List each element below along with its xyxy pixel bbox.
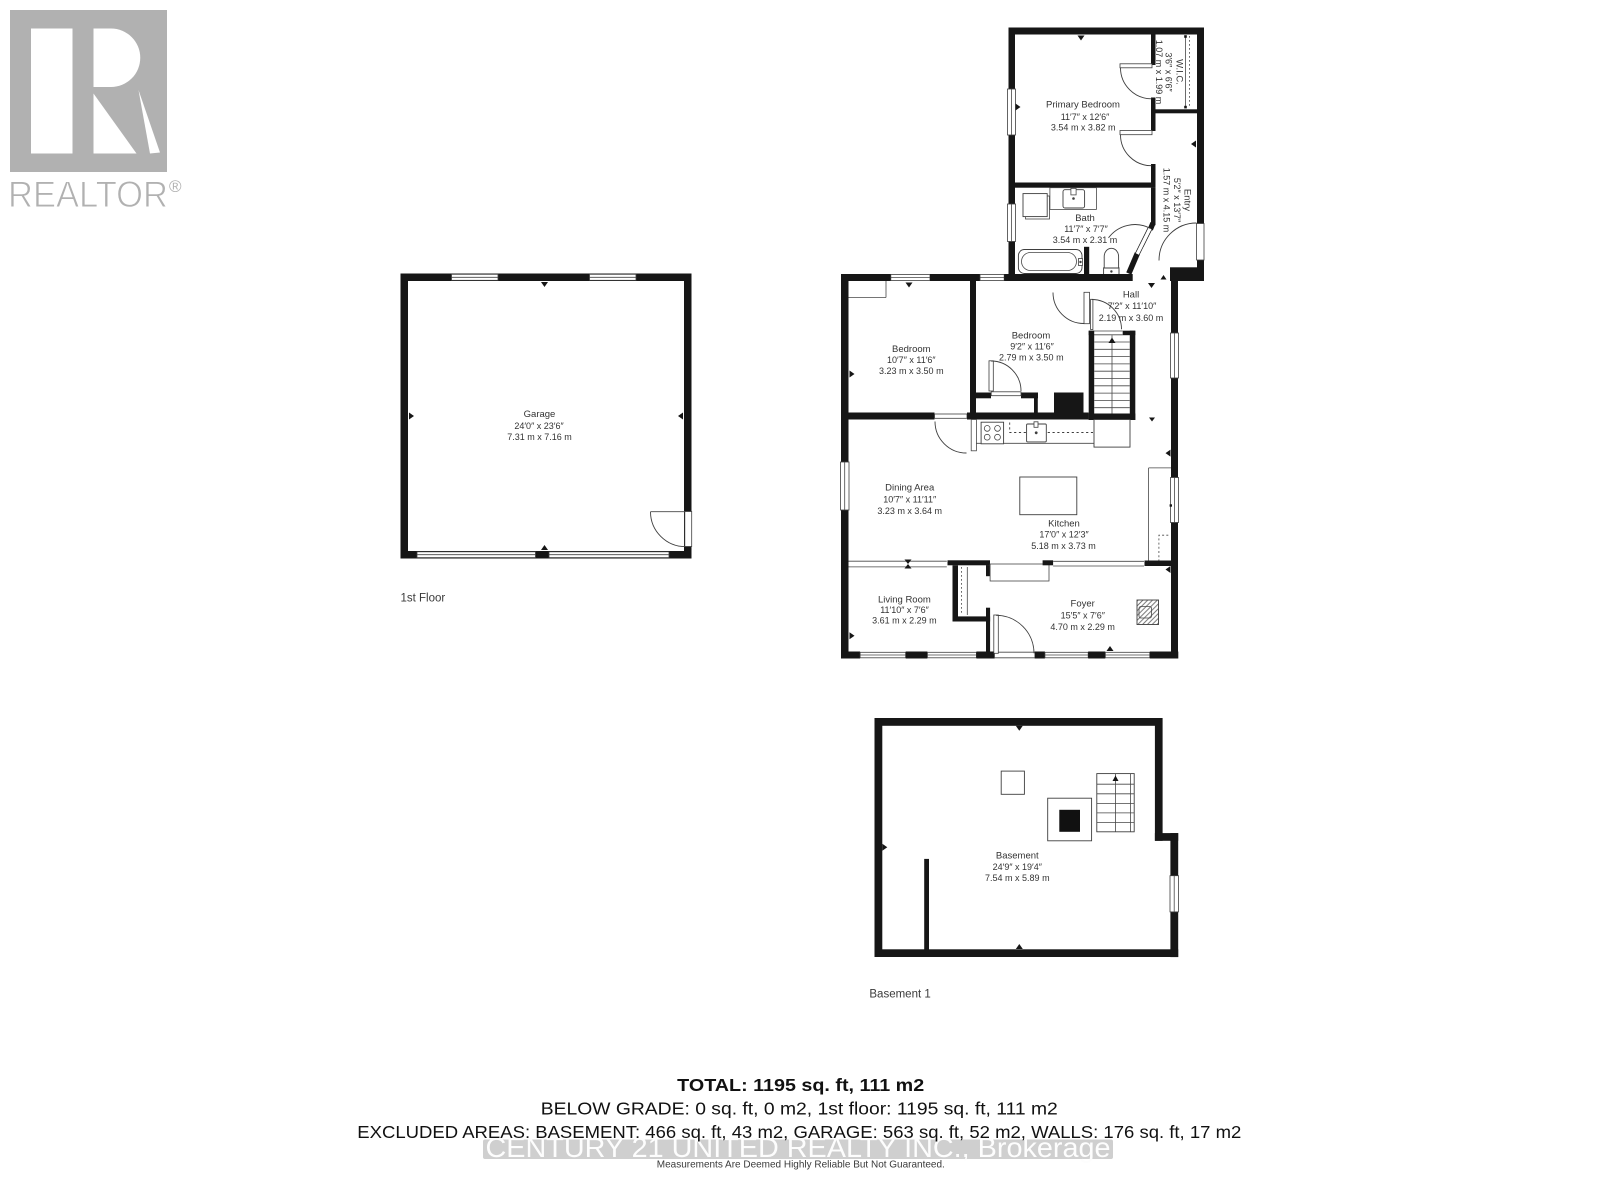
svg-text:2.19 m x 3.60 m: 2.19 m x 3.60 m [1099,313,1164,323]
svg-text:3′6″ x 6′6″: 3′6″ x 6′6″ [1164,52,1174,92]
svg-text:Bath: Bath [1075,213,1095,224]
svg-text:Hall: Hall [1123,290,1139,301]
svg-text:3.23 m x 3.50 m: 3.23 m x 3.50 m [879,366,944,376]
svg-text:Dining Area: Dining Area [885,483,935,494]
svg-text:3.61 m x 2.29 m: 3.61 m x 2.29 m [872,615,937,625]
svg-text:1.57 m x 4.15 m: 1.57 m x 4.15 m [1162,168,1172,233]
svg-text:Bedroom: Bedroom [1012,331,1051,342]
svg-text:Kitchen: Kitchen [1048,518,1080,529]
svg-text:10′7″ x 11′11″: 10′7″ x 11′11″ [883,494,937,504]
svg-text:1st Floor: 1st Floor [401,593,446,605]
svg-text:REALTOR: REALTOR [8,174,168,215]
svg-text:Bedroom: Bedroom [892,344,931,355]
svg-text:Garage: Garage [524,409,556,420]
svg-text:7′2″ x 11′10″: 7′2″ x 11′10″ [1108,301,1157,311]
svg-text:BELOW GRADE: 0 sq. ft, 0 m2, 1: BELOW GRADE: 0 sq. ft, 0 m2, 1st floor: … [541,1099,1058,1119]
svg-text:5.18 m x 3.73 m: 5.18 m x 3.73 m [1031,541,1096,551]
svg-text:1.07 m x 1.99 m: 1.07 m x 1.99 m [1154,40,1164,105]
svg-text:Primary Bedroom: Primary Bedroom [1046,99,1120,110]
svg-text:Living Room: Living Room [878,595,931,606]
svg-text:24′9″ x 19′4″: 24′9″ x 19′4″ [993,862,1043,872]
svg-text:4.70 m x 2.29 m: 4.70 m x 2.29 m [1050,622,1115,632]
svg-text:7.31 m x 7.16 m: 7.31 m x 7.16 m [507,432,572,442]
svg-text:15′5″ x 7′6″: 15′5″ x 7′6″ [1061,611,1106,621]
svg-text:3.23 m x 3.64 m: 3.23 m x 3.64 m [877,506,942,516]
svg-text:TOTAL: 1195 sq. ft, 111 m2: TOTAL: 1195 sq. ft, 111 m2 [677,1075,924,1095]
svg-text:2.79 m x 3.50 m: 2.79 m x 3.50 m [999,352,1064,362]
svg-text:5′2″ x 13′7″: 5′2″ x 13′7″ [1172,178,1182,223]
svg-text:11′7″ x 7′7″: 11′7″ x 7′7″ [1064,224,1108,234]
svg-text:7.54 m x 5.89 m: 7.54 m x 5.89 m [985,873,1050,883]
svg-text:Foyer: Foyer [1071,599,1095,610]
svg-text:Basement 1: Basement 1 [869,988,930,1000]
svg-text:Entry: Entry [1182,189,1193,211]
svg-text:Measurements Are Deemed Highly: Measurements Are Deemed Highly Reliable … [657,1159,945,1171]
svg-text:®: ® [169,177,182,196]
svg-text:W.I.C.: W.I.C. [1174,59,1185,85]
svg-text:10′7″ x 11′6″: 10′7″ x 11′6″ [887,355,936,365]
svg-text:11′10″ x 7′6″: 11′10″ x 7′6″ [880,605,929,615]
svg-text:3.54 m x 3.82 m: 3.54 m x 3.82 m [1051,122,1116,132]
svg-text:24′0″ x 23′6″: 24′0″ x 23′6″ [514,421,564,431]
svg-text:9′2″ x 11′6″: 9′2″ x 11′6″ [1010,342,1054,352]
svg-text:EXCLUDED AREAS: BASEMENT: 466: EXCLUDED AREAS: BASEMENT: 466 sq. ft, 43… [357,1122,1241,1142]
svg-text:17′0″ x 12′3″: 17′0″ x 12′3″ [1039,530,1089,540]
svg-text:11′7″ x 12′6″: 11′7″ x 12′6″ [1061,112,1110,122]
svg-text:Basement: Basement [996,851,1039,862]
svg-text:3.54 m x 2.31 m: 3.54 m x 2.31 m [1053,235,1118,245]
